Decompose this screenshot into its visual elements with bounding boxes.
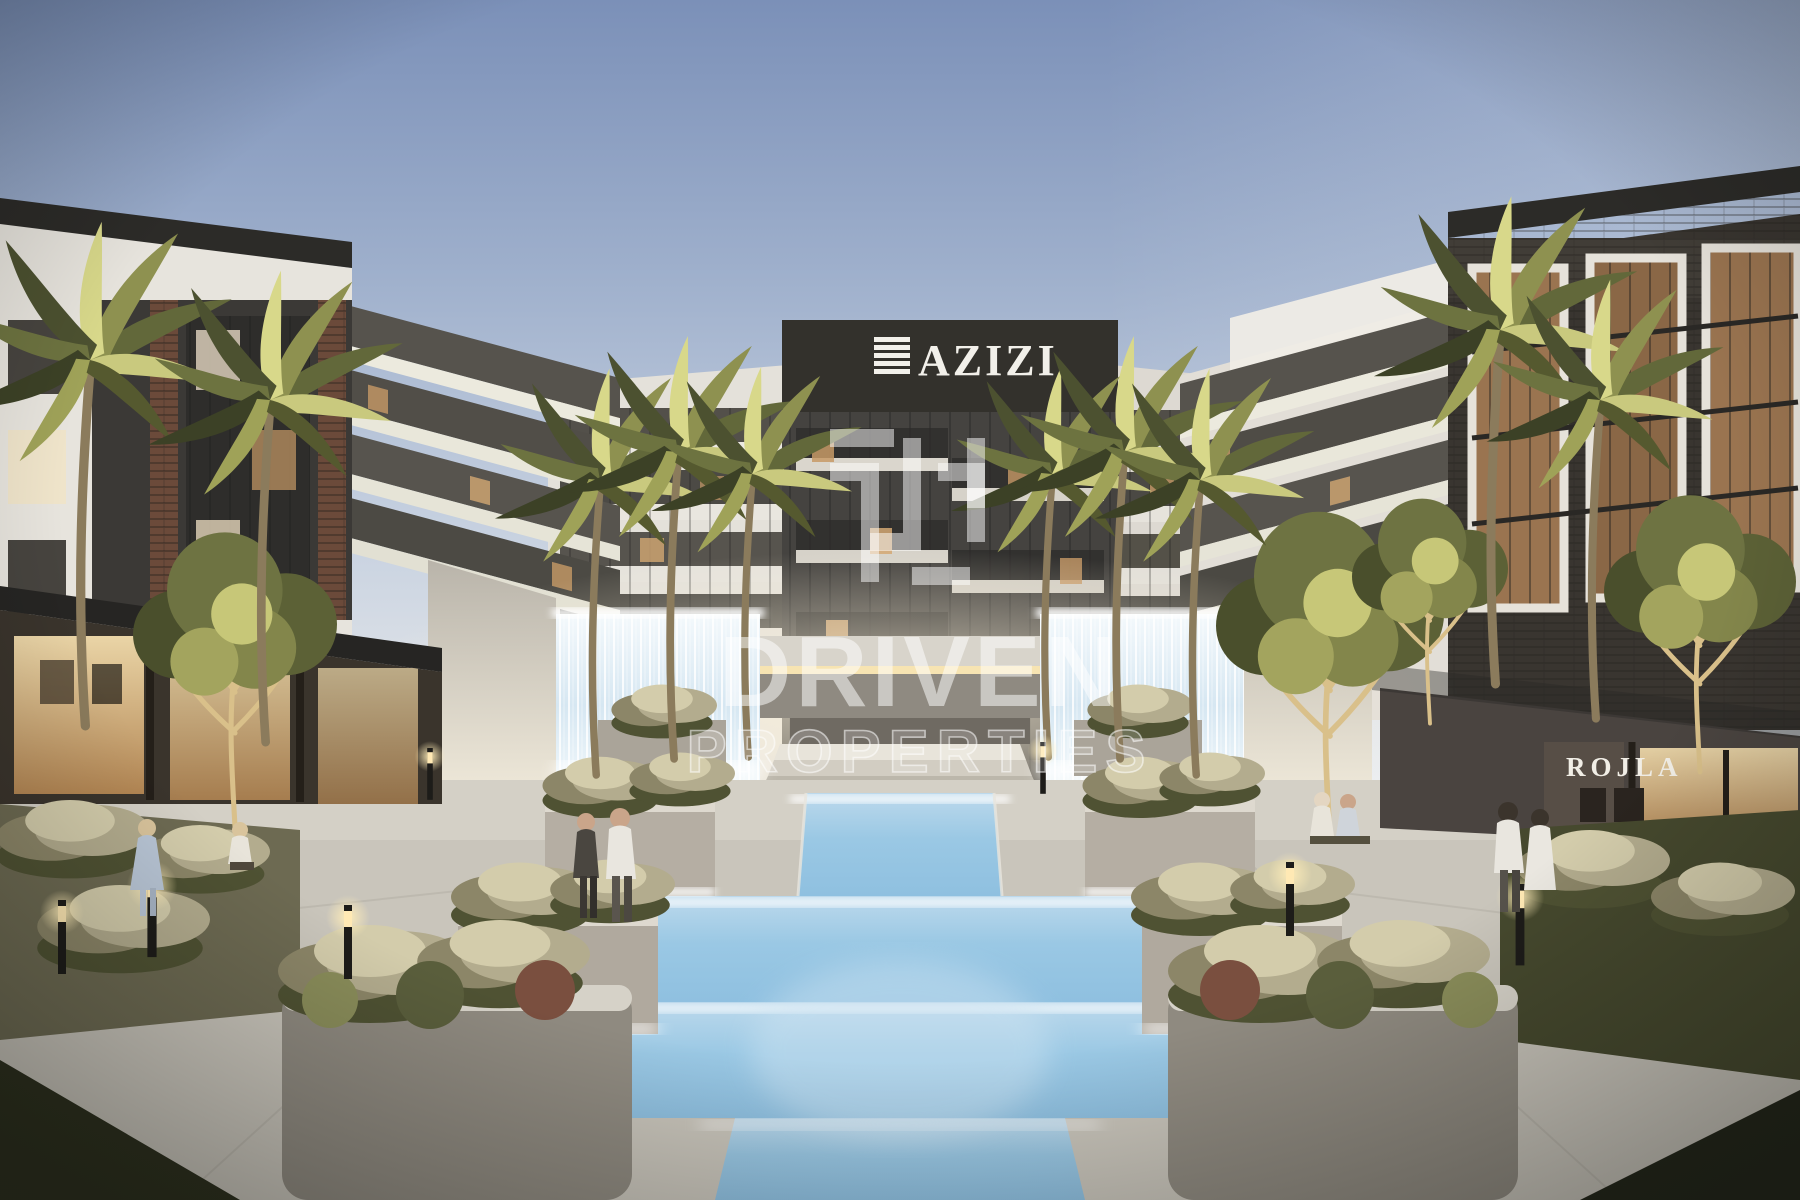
watermark-line2: PROPERTIES (687, 718, 1154, 785)
watermark-line1: DRIVEN (719, 616, 1121, 728)
scene-svg: AZIZI (0, 0, 1800, 1200)
render-canvas: AZIZI (0, 0, 1800, 1200)
vignette (0, 0, 1800, 1200)
